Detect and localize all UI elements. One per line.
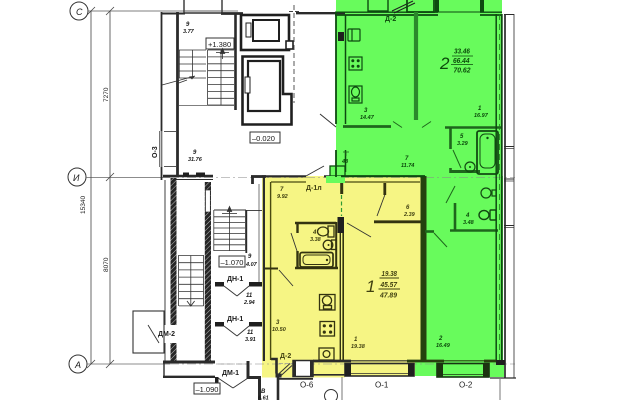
- svg-text:Д-2: Д-2: [280, 353, 291, 360]
- svg-text:11: 11: [246, 293, 253, 299]
- svg-text:3.29: 3.29: [457, 141, 469, 147]
- svg-text:3.48: 3.48: [463, 220, 475, 226]
- svg-text:О-1: О-1: [375, 381, 389, 390]
- svg-text:ДН-1: ДН-1: [227, 276, 243, 283]
- svg-text:С: С: [76, 7, 83, 17]
- svg-text:6.61: 6.61: [258, 396, 269, 400]
- svg-text:2: 2: [438, 336, 443, 342]
- svg-text:8070: 8070: [103, 257, 110, 272]
- svg-text:1: 1: [366, 277, 375, 296]
- svg-text:3.77: 3.77: [183, 29, 195, 35]
- svg-text:2.39: 2.39: [403, 212, 416, 218]
- svg-text:–1.090: –1.090: [196, 385, 219, 394]
- svg-text:9.92: 9.92: [277, 194, 288, 200]
- svg-text:19.38: 19.38: [382, 269, 398, 278]
- svg-text:Д-1л: Д-1л: [306, 185, 322, 192]
- svg-text:4.07: 4.07: [245, 262, 258, 268]
- svg-text:–0.020: –0.020: [252, 134, 275, 143]
- svg-text:14.47: 14.47: [360, 115, 375, 121]
- svg-text:4: 4: [312, 230, 317, 236]
- svg-text:11.74: 11.74: [401, 163, 414, 169]
- svg-text:10.50: 10.50: [272, 327, 286, 333]
- svg-text:16.49: 16.49: [436, 343, 451, 349]
- svg-text:О-6: О-6: [300, 381, 314, 390]
- svg-text:48: 48: [341, 159, 349, 165]
- svg-text:31.76: 31.76: [188, 157, 203, 163]
- svg-text:33.46: 33.46: [454, 47, 471, 56]
- svg-text:И: И: [73, 173, 80, 183]
- svg-text:2: 2: [439, 54, 450, 73]
- svg-text:А: А: [74, 360, 81, 370]
- svg-text:15340: 15340: [80, 196, 87, 214]
- svg-text:ДМ-2: ДМ-2: [158, 331, 175, 338]
- svg-text:16.97: 16.97: [474, 113, 489, 119]
- svg-text:7270: 7270: [103, 87, 110, 102]
- svg-text:3.91: 3.91: [245, 337, 256, 343]
- svg-text:3.38: 3.38: [310, 237, 322, 243]
- svg-text:В: В: [261, 389, 266, 395]
- svg-text:–1.070: –1.070: [221, 258, 244, 267]
- svg-text:70.62: 70.62: [454, 66, 472, 75]
- svg-text:4: 4: [465, 213, 470, 219]
- svg-text:19.38: 19.38: [351, 344, 366, 350]
- svg-text:2.94: 2.94: [243, 300, 255, 306]
- svg-text:45.57: 45.57: [380, 280, 398, 289]
- svg-text:11: 11: [247, 330, 254, 336]
- svg-text:О-3: О-3: [152, 146, 159, 158]
- svg-text:66.44: 66.44: [453, 56, 470, 65]
- svg-text:Д-2: Д-2: [385, 16, 396, 23]
- svg-text:О-2: О-2: [459, 381, 473, 390]
- svg-text:ДН-1: ДН-1: [227, 316, 243, 323]
- svg-text:+1.380: +1.380: [208, 40, 231, 49]
- svg-text:ДМ-1: ДМ-1: [222, 370, 239, 377]
- svg-text:47.89: 47.89: [379, 291, 398, 300]
